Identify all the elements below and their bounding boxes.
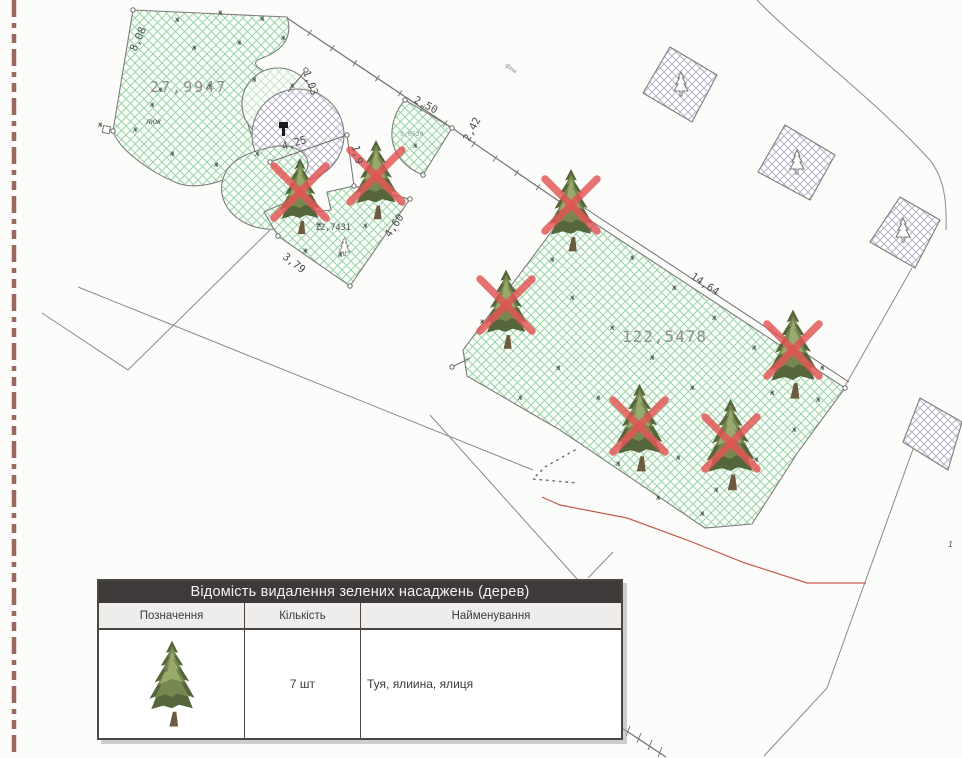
removal-legend-table: Відомість видалення зелених насаджень (д…: [97, 579, 623, 740]
symbol-cell: [99, 630, 245, 738]
fence-tick: [308, 30, 312, 36]
grass-mark: ж: [175, 15, 180, 24]
grass-mark: ж: [413, 141, 418, 150]
road-curb-line: [757, 0, 946, 230]
grass-mark: ж: [816, 395, 821, 404]
grass-mark: ж: [630, 253, 635, 262]
grass-mark: ж: [610, 323, 615, 332]
grass-mark: ж: [650, 353, 655, 362]
name-cell: Туя, ялиина, ялиця: [361, 630, 621, 738]
grass-mark: ж: [260, 14, 265, 23]
grass-mark: ж: [150, 100, 155, 109]
grass-mark: ж: [700, 509, 705, 518]
table-row: 7 шт Туя, ялиина, ялиця: [99, 630, 621, 738]
dim-1-9: 1,9: [349, 144, 365, 165]
grass-mark: ж: [281, 33, 286, 42]
grass-mark: ж: [712, 313, 717, 322]
walkway-edge-left: [42, 230, 270, 370]
manhole-label: люк: [145, 116, 162, 126]
grass-mark: ж: [518, 393, 523, 402]
grass-mark: ж: [303, 246, 308, 255]
area-label-middle: 12,7431: [315, 223, 351, 233]
walkway-edge-lower: [430, 415, 578, 580]
fence-tick: [375, 75, 379, 81]
grass-mark: ж: [672, 283, 677, 292]
grass-mark: ж: [570, 293, 575, 302]
grass-mark: ж: [218, 8, 223, 17]
grass-mark: ж: [656, 493, 661, 502]
grass-mark: ж: [690, 383, 695, 392]
col-header-symbol: Позначення: [99, 603, 245, 628]
fence-tick: [398, 90, 402, 96]
grass-mark: ж: [192, 43, 197, 52]
boundary-segment-right: [845, 268, 912, 386]
fence-tick: [353, 60, 357, 66]
table-leader-line: [588, 552, 613, 578]
boundary-segment-bottom-right: [764, 438, 917, 756]
grass-mark: ж: [170, 149, 175, 158]
area-label-fan: 5,0529: [400, 130, 424, 138]
pavement-label: фем: [504, 63, 518, 75]
conifer-tree-icon: [146, 632, 198, 736]
grass-mark: ж: [133, 125, 138, 134]
col-header-name: Найменування: [361, 603, 621, 628]
grass-mark: ж: [616, 459, 621, 468]
grass-mark: ж: [676, 453, 681, 462]
planting-areas: [113, 10, 962, 528]
grass-mark: ж: [752, 343, 757, 352]
manhole-symbol: [102, 125, 110, 133]
dotted-limit-line: [533, 450, 577, 483]
fence-tick: [330, 45, 334, 51]
grass-mark: ж: [255, 149, 260, 158]
parcel-number-label: 1: [948, 539, 953, 549]
walkway-edge-upper: [78, 287, 533, 470]
dim-2-42: 2,42: [461, 115, 483, 143]
area-label-main: 122,5478: [622, 327, 707, 346]
grass-mark: ж: [550, 255, 555, 264]
col-header-quantity: Кількість: [245, 603, 361, 628]
grass-mark: ж: [237, 38, 242, 47]
grass-mark: ж: [252, 75, 257, 84]
table-header-row: Позначення Кількість Найменування: [99, 603, 621, 630]
grass-mark: ж: [98, 120, 103, 129]
table-title: Відомість видалення зелених насаджень (д…: [99, 581, 621, 603]
grass-mark: ж: [556, 363, 561, 372]
paved-square-4-partial: [903, 398, 962, 470]
grass-mark: ж: [714, 485, 719, 494]
steps-symbol: [622, 726, 666, 757]
grass-mark: ж: [214, 160, 219, 169]
area-label-left: 27,9947: [150, 78, 227, 96]
quantity-cell: 7 шт: [245, 630, 361, 738]
grass-mark: ж: [363, 221, 368, 230]
grass-mark: ж: [792, 425, 797, 434]
grass-mark: ж: [770, 388, 775, 397]
grass-mark: ж: [596, 393, 601, 402]
site-plan-page: жжжжжжжжжжжжжжжжжжжжжжжжжжжжжжжжжжжжжжжж…: [0, 0, 962, 758]
